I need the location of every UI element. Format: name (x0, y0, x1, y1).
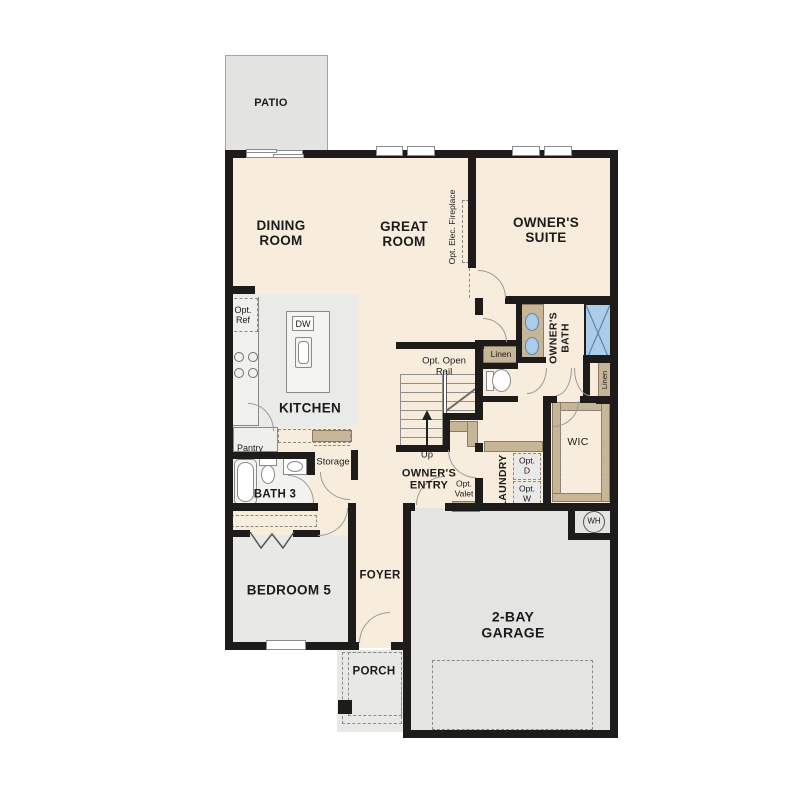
stove-burner (248, 368, 258, 378)
opt-open-rail-label: Opt. Open Rail (422, 356, 466, 377)
foyer-label: FOYER (359, 570, 400, 583)
wall (403, 503, 415, 511)
laundry-shelf (484, 441, 543, 452)
kitchen-label: KITCHEN (279, 400, 341, 415)
wall (610, 150, 618, 738)
bath3-tub-inner (237, 462, 254, 502)
window (376, 146, 403, 156)
bath3-label: BATH 3 (254, 489, 296, 502)
wall (480, 363, 518, 369)
porch-post (338, 700, 352, 714)
wall (475, 340, 483, 420)
stove-burner (248, 352, 258, 362)
storage-label: Storage (316, 458, 349, 469)
opt-d-label: Opt. D (519, 456, 535, 475)
wall (307, 452, 315, 475)
shower (584, 303, 612, 363)
island-sink-basin (298, 341, 309, 364)
wall (516, 357, 546, 363)
laundry-label: LAUNDRY (498, 454, 510, 507)
window (407, 146, 435, 156)
dining-room-label: DINING ROOM (256, 218, 305, 248)
pantry-label: Pantry (237, 443, 263, 453)
stove-burner (234, 352, 244, 362)
opt-valet-label: Opt. Valet (455, 479, 474, 498)
owners-bath-label: OWNER'S BATH (548, 312, 572, 364)
sliding-door-panel (273, 154, 304, 158)
up-label: Up (421, 451, 433, 462)
sliding-door-panel (246, 149, 277, 153)
vanity-sink (525, 313, 539, 331)
wall (543, 396, 551, 503)
wall (403, 510, 411, 738)
wall (568, 533, 618, 540)
wall (351, 450, 358, 480)
bedroom5-label: BEDROOM 5 (247, 582, 331, 597)
wall (225, 150, 233, 650)
owners-entry-label: OWNER'S ENTRY (402, 468, 456, 493)
opt-ref-label: Opt. Ref (234, 305, 251, 325)
water-heater-label: WH (587, 518, 600, 527)
wall (403, 730, 618, 738)
wall (225, 530, 250, 537)
wall (396, 342, 484, 349)
wall (583, 355, 618, 361)
wall (580, 396, 618, 403)
wic-label: WIC (567, 437, 588, 449)
linen-left-label: Linen (491, 350, 512, 360)
stove-burner (234, 368, 244, 378)
bath3-toilet-bowl (261, 465, 275, 484)
opt-elec-fireplace-label: Opt. Elec. Fireplace (448, 190, 458, 265)
owners-suite-label: OWNER'S SUITE (513, 215, 579, 245)
bath3-sink-basin (287, 461, 303, 472)
wall (225, 286, 255, 294)
wall (445, 503, 618, 511)
porch-outline-inner (348, 652, 402, 716)
wic-shelf-right (601, 402, 610, 502)
wall (468, 150, 476, 268)
dw-label: DW (296, 319, 311, 329)
wall (516, 302, 522, 360)
opt-wall (469, 268, 471, 298)
window (544, 146, 572, 156)
wall (475, 443, 483, 452)
owners-toilet-bowl (492, 369, 511, 392)
opt-counter (278, 429, 351, 443)
bedroom-closet-shelf (231, 515, 317, 527)
wall (348, 503, 356, 650)
wall (475, 298, 483, 315)
patio-label: PATIO (254, 97, 287, 109)
wall (293, 530, 320, 537)
great-room-label: GREAT ROOM (380, 219, 428, 249)
linen-right-label: Linen (601, 371, 609, 389)
garage-parking-area (432, 660, 593, 730)
wall (475, 478, 483, 510)
opt-w-label: Opt. W (519, 484, 535, 503)
up-arrow-head (422, 410, 432, 420)
wall (225, 452, 315, 459)
window (266, 640, 306, 650)
vanity-sink (525, 337, 539, 355)
floor-plan: WH PATIO DINING ROOM GREAT ROOM OWNER'S … (0, 0, 810, 810)
closet-bifold-doors (249, 531, 295, 551)
up-arrow-line (426, 420, 428, 446)
garage-label: 2-BAY GARAGE (481, 609, 544, 640)
wall (225, 503, 318, 511)
wall (478, 396, 518, 402)
porch-label: PORCH (352, 666, 395, 679)
window (512, 146, 540, 156)
